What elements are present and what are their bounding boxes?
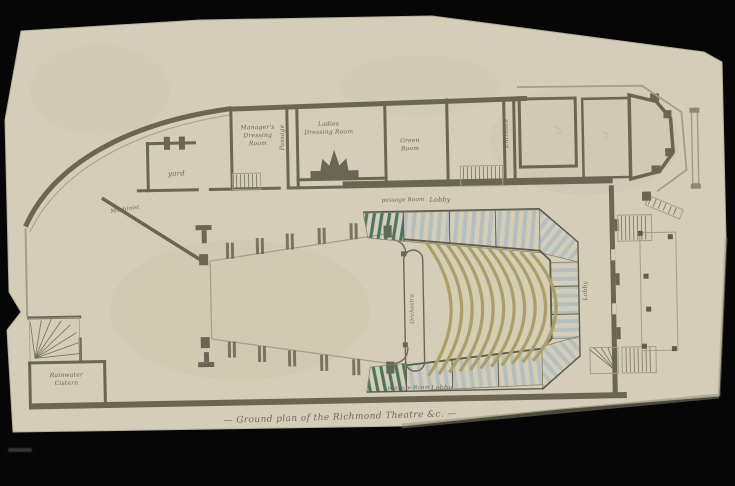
plan-drawing [0,0,735,486]
stage-box-green-bottom [366,363,407,392]
stage-box-green-top [363,212,404,242]
museum-stamp [8,448,32,452]
museum-photograph: yard Machinist Manager's Dressing Room P… [0,0,735,486]
